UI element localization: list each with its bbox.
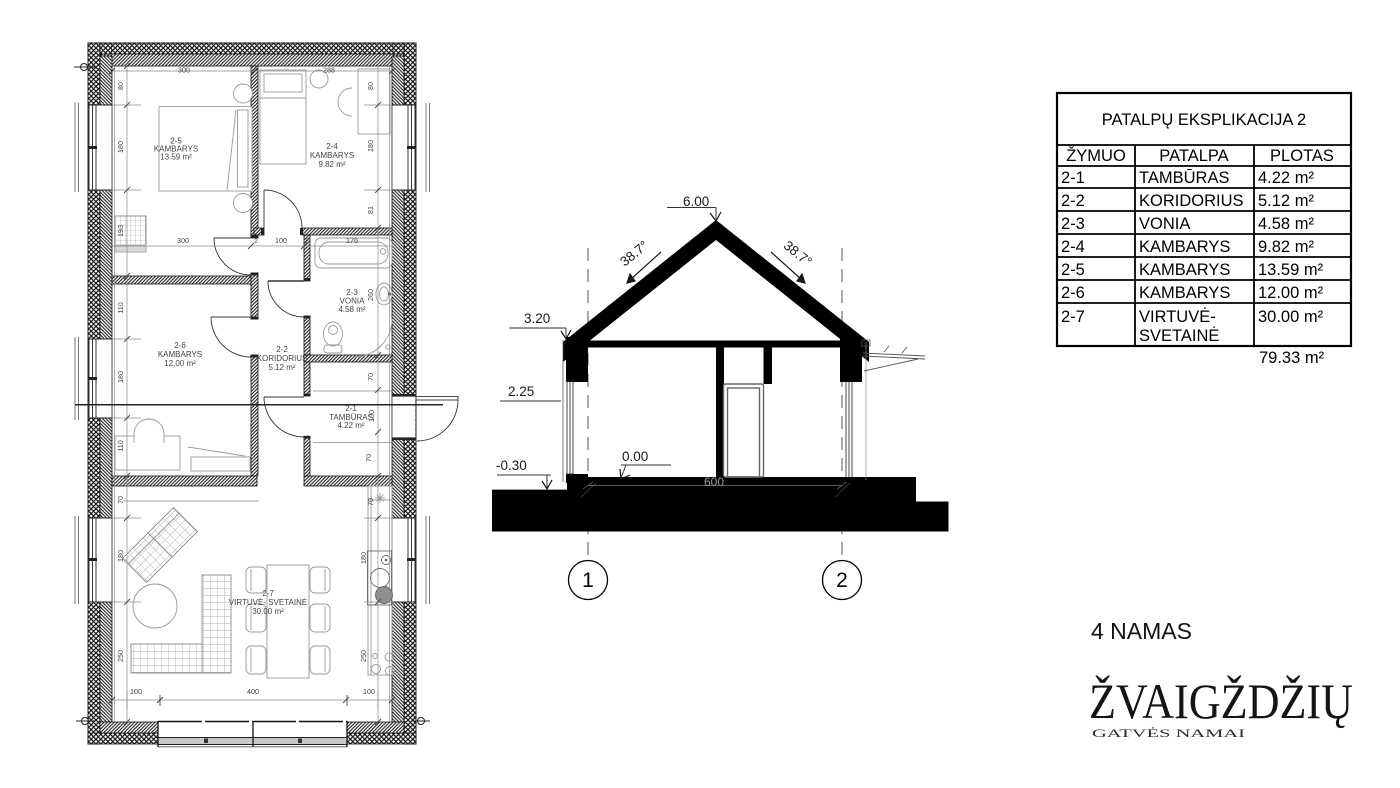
svg-text:2-3: 2-3 [1061,215,1085,233]
svg-text:KORIDORIUS: KORIDORIUS [1139,192,1244,210]
svg-text:180: 180 [116,141,125,153]
svg-text:30.00 m²: 30.00 m² [252,607,284,616]
svg-text:4.22 m²: 4.22 m² [1258,169,1314,187]
svg-text:2: 2 [254,238,258,245]
svg-text:30.00 m²: 30.00 m² [1258,308,1324,326]
svg-text:KAMBARYS: KAMBARYS [158,350,202,359]
svg-text:6.00: 6.00 [683,194,709,209]
svg-text:70: 70 [366,498,375,506]
svg-text:0.00: 0.00 [622,449,648,464]
svg-text:2-5: 2-5 [1061,261,1085,279]
svg-text:2.25: 2.25 [508,384,534,399]
svg-text:2-1: 2-1 [345,404,357,413]
svg-text:VIRTUVĖ- SVETAINĖ: VIRTUVĖ- SVETAINĖ [229,598,307,607]
svg-text:PATALPŲ EKSPLIKACIJA 2: PATALPŲ EKSPLIKACIJA 2 [1102,111,1307,129]
svg-text:1: 1 [582,569,594,592]
svg-text:5.12 m²: 5.12 m² [268,363,295,372]
svg-text:260: 260 [366,289,375,301]
svg-text:300: 300 [178,66,190,75]
svg-text:4.58 m²: 4.58 m² [1258,215,1314,233]
svg-text:ŽVAIGŽDŽIŲ: ŽVAIGŽDŽIŲ [1089,673,1353,729]
svg-text:80: 80 [366,82,375,90]
svg-text:9.82 m²: 9.82 m² [318,160,345,169]
svg-text:250: 250 [359,650,368,662]
svg-text:100: 100 [363,687,375,696]
svg-text:180: 180 [366,140,375,152]
svg-text:110: 110 [116,302,125,313]
svg-text:79.33 m²: 79.33 m² [1259,349,1325,367]
svg-text:180: 180 [116,371,125,383]
svg-text:100: 100 [367,410,376,422]
svg-text:TAMBŪRAS: TAMBŪRAS [1139,169,1229,187]
svg-text:13.59 m²: 13.59 m² [160,153,192,162]
svg-text:ŽYMUO: ŽYMUO [1066,146,1126,165]
svg-text:70: 70 [364,454,373,462]
svg-text:100: 100 [130,687,142,696]
svg-text:2-6: 2-6 [174,341,186,350]
svg-text:2-7: 2-7 [262,589,274,598]
svg-text:2-2: 2-2 [1061,192,1085,210]
svg-text:2: 2 [305,238,309,245]
svg-text:180: 180 [116,550,125,562]
svg-text:KAMBARYS: KAMBARYS [1139,261,1230,279]
svg-text:KAMBARYS: KAMBARYS [310,151,354,160]
svg-text:176: 176 [346,236,358,245]
svg-text:2-7: 2-7 [1061,308,1085,326]
svg-text:70: 70 [116,496,125,504]
svg-text:4.58 m²: 4.58 m² [338,305,365,314]
svg-text:5.12 m²: 5.12 m² [1258,192,1314,210]
svg-text:KORIDORIUS: KORIDORIUS [257,354,308,363]
svg-text:SVETAINĖ: SVETAINĖ [1139,326,1219,345]
svg-text:400: 400 [247,687,259,696]
svg-text:110: 110 [116,440,125,451]
svg-text:2: 2 [836,569,848,592]
svg-text:2-4: 2-4 [1061,238,1085,256]
svg-text:13.59 m²: 13.59 m² [1258,261,1324,279]
svg-text:3.20: 3.20 [524,311,550,326]
svg-text:300: 300 [177,236,189,245]
svg-text:PLOTAS: PLOTAS [1270,147,1334,165]
svg-text:2-4: 2-4 [326,142,338,151]
svg-text:81: 81 [366,206,375,214]
svg-text:100: 100 [275,236,287,245]
svg-text:GATVĖS NAMAI: GATVĖS NAMAI [1092,726,1245,740]
svg-text:193: 193 [116,225,125,237]
svg-text:2-6: 2-6 [1061,284,1085,302]
svg-text:VIRTUVĖ-: VIRTUVĖ- [1139,307,1216,326]
svg-text:12.00 m²: 12.00 m² [1258,284,1324,302]
svg-text:4 NAMAS: 4 NAMAS [1091,618,1192,644]
svg-text:250: 250 [116,650,125,662]
svg-text:12.00 m²: 12.00 m² [164,359,196,368]
svg-text:600: 600 [704,475,724,489]
svg-text:KAMBARYS: KAMBARYS [1139,238,1230,256]
svg-text:180: 180 [359,552,368,564]
svg-text:PATALPA: PATALPA [1159,147,1228,165]
svg-text:4.22 m²: 4.22 m² [337,421,364,430]
svg-text:KAMBARYS: KAMBARYS [1139,284,1230,302]
svg-text:2-1: 2-1 [1061,169,1085,187]
svg-text:-0.30: -0.30 [496,458,527,473]
svg-text:9.82 m²: 9.82 m² [1258,238,1314,256]
svg-text:70: 70 [366,373,375,381]
svg-text:VONIA: VONIA [1139,215,1190,233]
svg-text:80: 80 [116,82,125,90]
svg-text:2-2: 2-2 [276,345,288,354]
svg-text:288: 288 [323,66,335,75]
